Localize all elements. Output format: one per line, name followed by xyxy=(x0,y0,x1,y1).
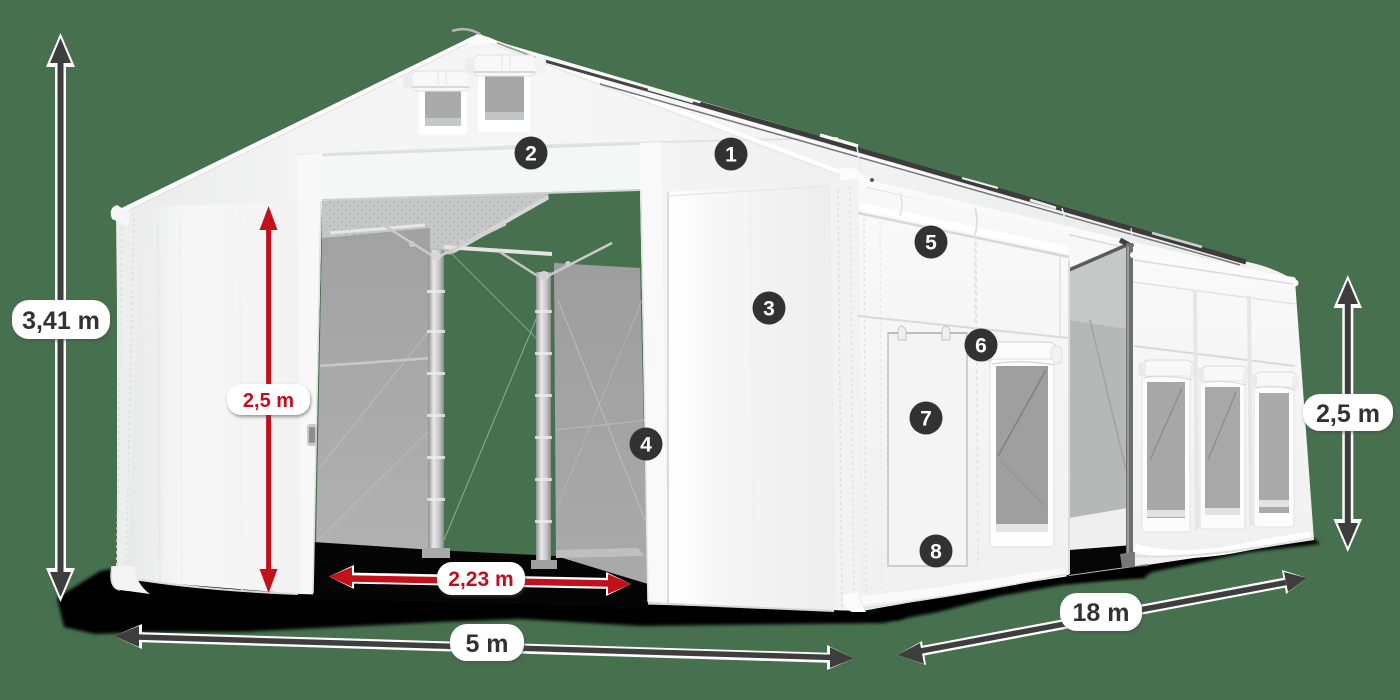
svg-text:18 m: 18 m xyxy=(1073,599,1130,627)
svg-text:7: 7 xyxy=(920,408,932,431)
svg-text:5: 5 xyxy=(925,232,937,255)
svg-text:2,23 m: 2,23 m xyxy=(448,568,513,591)
svg-text:8: 8 xyxy=(930,541,942,564)
svg-text:4: 4 xyxy=(640,434,652,457)
svg-text:3,41 m: 3,41 m xyxy=(22,307,100,335)
svg-text:2,5 m: 2,5 m xyxy=(1316,400,1380,428)
svg-text:2,5 m: 2,5 m xyxy=(243,390,294,412)
svg-text:1: 1 xyxy=(725,144,737,167)
svg-text:6: 6 xyxy=(975,335,987,358)
svg-text:5 m: 5 m xyxy=(465,630,508,658)
svg-text:3: 3 xyxy=(763,298,775,321)
svg-text:2: 2 xyxy=(525,143,537,166)
